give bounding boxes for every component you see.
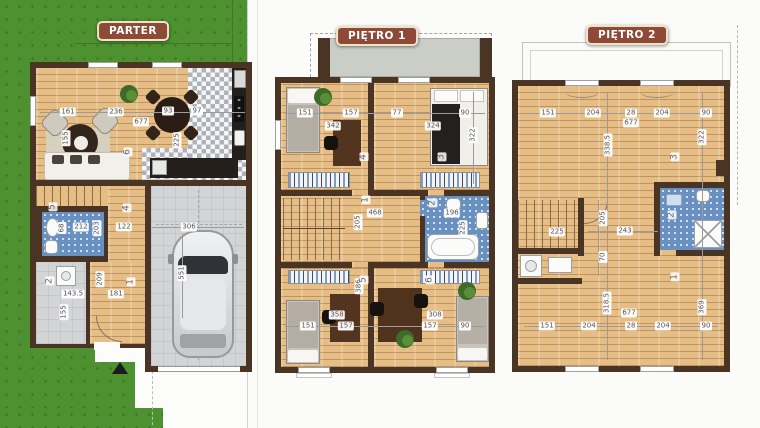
desk-chair: [414, 294, 428, 308]
floor-badge-pietro2: PIĘTRO 2: [586, 25, 668, 45]
room-number-label: 2: [429, 199, 438, 208]
door-gap: [428, 190, 444, 196]
utility-cabinet: [548, 257, 572, 273]
p1-stairs: [283, 198, 345, 260]
dimension-label: 204: [585, 109, 601, 118]
dimension-label: 161: [60, 108, 76, 117]
dimension-label: 225: [173, 132, 182, 148]
lawn-step-2: [0, 408, 163, 428]
door-gap: [660, 250, 676, 256]
dimension-label: 90: [700, 322, 712, 331]
dimension-label: 677: [133, 118, 149, 127]
washer-drum-icon: [525, 260, 537, 272]
dimension-label: 151: [539, 322, 555, 331]
bed-pillow: [288, 350, 318, 362]
p1-stairs-rail: [283, 228, 345, 229]
shower-icon: [694, 220, 722, 248]
floorplan-sheet: PARTER PIĘTRO 1 PIĘTRO 2 161236939767715…: [0, 0, 760, 428]
window: [340, 77, 372, 83]
entrance-door-gap: [94, 342, 120, 350]
floor-badge-parter: PARTER: [97, 21, 169, 41]
dimension-label: 181: [108, 290, 124, 299]
window-sill: [296, 373, 332, 378]
dimension-label: 205: [354, 214, 363, 230]
p2-bath-wall-top: [654, 182, 724, 188]
kitchen-sink-icon: [152, 160, 167, 175]
dimension-label: 97: [191, 107, 203, 116]
dimension-label: 322: [698, 129, 707, 145]
washbasin-icon: [476, 212, 488, 229]
dimension-line: [607, 92, 608, 360]
window: [152, 62, 182, 68]
window: [30, 96, 36, 126]
window: [88, 62, 118, 68]
dimension-label: 203: [93, 220, 102, 236]
toilet-icon: [45, 240, 58, 254]
dimension-label: 342: [325, 122, 341, 131]
car-roof: [180, 278, 226, 330]
room-number-label: 4: [123, 204, 132, 213]
dimension-label: 318.5: [603, 291, 612, 314]
window: [565, 366, 599, 372]
p2-stairs-wall-bottom: [518, 248, 584, 254]
dimension-label: 551: [178, 265, 187, 281]
dimension-label: 212: [73, 223, 89, 232]
plant-leaf-icon: [464, 287, 475, 298]
dimension-label: 155: [60, 304, 69, 320]
p1-terrace-wall-right: [480, 38, 492, 78]
stove-cooktop-icon: [234, 96, 244, 122]
dimension-label: 225: [549, 228, 565, 237]
room-number-label: 5: [49, 203, 58, 212]
window-opening-arc: [640, 86, 674, 98]
dimension-line: [152, 227, 244, 228]
window: [275, 120, 281, 150]
sofa-cushion: [70, 155, 82, 164]
room-number-label: 3: [671, 153, 680, 162]
room-number-label: 6: [124, 148, 133, 157]
dimension-label: 338.5: [604, 133, 613, 156]
fridge-icon: [234, 70, 246, 88]
p2-bath-wall-left: [654, 188, 660, 250]
washbasin-icon: [666, 194, 682, 206]
window: [640, 366, 674, 372]
room-number-label: 1: [127, 278, 136, 287]
p2-stairs: [518, 200, 578, 248]
roof-outline-dashed: [737, 25, 738, 205]
dimension-label: 236: [108, 108, 124, 117]
plot-boundary-line-v: [232, 0, 233, 62]
garage-guide-line-h: [156, 224, 242, 225]
dimension-label: 90: [700, 109, 712, 118]
table-lamp-icon: [74, 136, 88, 150]
dimension-label: 468: [367, 209, 383, 218]
p2-wall-stub: [716, 160, 730, 176]
parter-stairs: [36, 186, 108, 206]
entrance-marker-icon: [112, 362, 128, 374]
window-opening-arc: [565, 86, 599, 98]
dimension-label: 196: [444, 209, 460, 218]
plant-leaf-icon: [126, 90, 137, 101]
dimension-label: 308: [427, 311, 443, 320]
room-number-label: 2: [668, 211, 677, 220]
plant-leaf-icon: [320, 93, 331, 104]
floor-badge-pietro1: PIĘTRO 1: [336, 26, 418, 46]
plant-leaf-icon: [402, 335, 413, 346]
dimension-label: 157: [343, 109, 359, 118]
sofa-cushion: [88, 155, 100, 164]
sheet-divider-line-2: [257, 0, 258, 428]
wardrobe: [420, 172, 480, 188]
dimension-label: 143.5: [61, 290, 84, 299]
p1-terrace-wall-left: [318, 38, 330, 78]
dimension-label: 157: [338, 322, 354, 331]
room-number-label: 3: [438, 153, 447, 162]
dimension-label: 151: [297, 109, 313, 118]
dimension-label: 204: [581, 322, 597, 331]
wardrobe: [288, 172, 350, 188]
car-mirror: [232, 254, 238, 264]
dimension-label: 70: [599, 251, 608, 263]
bed-pillow: [458, 348, 487, 360]
dimension-label: 209: [96, 271, 105, 287]
sofa-cushion: [52, 155, 64, 164]
dimension-label: 243: [617, 227, 633, 236]
dimension-label: 28: [625, 322, 637, 331]
dimension-label: 93: [162, 107, 174, 116]
window-sill: [434, 373, 470, 378]
dimension-label: 225: [459, 220, 468, 236]
window: [398, 77, 430, 83]
room-number-label: 1: [362, 196, 371, 205]
desk-chair: [370, 302, 384, 316]
dimension-label: 77: [391, 109, 403, 118]
room-number-label: 4: [360, 153, 369, 162]
plot-boundary-line-h: [75, 43, 232, 44]
washer-drum-icon: [61, 271, 71, 281]
room-number-label: 1: [671, 273, 680, 282]
dimension-label: 677: [621, 309, 637, 318]
car-mirror: [168, 254, 174, 264]
door-gap: [428, 262, 444, 268]
toilet-icon: [696, 190, 710, 202]
dimension-label: 157: [422, 322, 438, 331]
dimension-label: 205: [599, 210, 608, 226]
dimension-label: 306: [181, 223, 197, 232]
dimension-label: 358: [329, 311, 345, 320]
p2-alcove-wall: [518, 278, 582, 284]
dimension-label: 28: [625, 109, 637, 118]
car-rear-window: [180, 334, 226, 348]
bed-pillow: [460, 90, 484, 102]
dimension-label: 122: [116, 223, 132, 232]
dimension-label: 324: [425, 122, 441, 131]
dimension-label: 90: [459, 322, 471, 331]
dimension-line: [285, 113, 485, 114]
bathtub-inner: [431, 238, 475, 256]
garage-door: [158, 366, 240, 372]
dimension-label: 151: [540, 109, 556, 118]
dimension-label: 677: [623, 119, 639, 128]
kitchen-sink2-icon: [234, 130, 245, 146]
door-gap: [352, 262, 368, 268]
dimension-label: 369: [698, 299, 707, 315]
dimension-label: 151: [300, 322, 316, 331]
dimension-label: 322: [469, 127, 478, 143]
bed-pillow: [434, 90, 458, 102]
dimension-label: 204: [654, 109, 670, 118]
room-number-label: 6: [426, 276, 435, 285]
desk-chair: [324, 136, 338, 150]
door-gap: [420, 200, 425, 216]
room-number-label: 5: [360, 276, 369, 285]
wardrobe: [288, 270, 350, 284]
dimension-label: 155: [62, 130, 71, 146]
room-number-label: 2: [46, 277, 55, 286]
dimension-label: 68: [58, 222, 67, 234]
dimension-label: 204: [655, 322, 671, 331]
dimension-label: 90: [459, 109, 471, 118]
